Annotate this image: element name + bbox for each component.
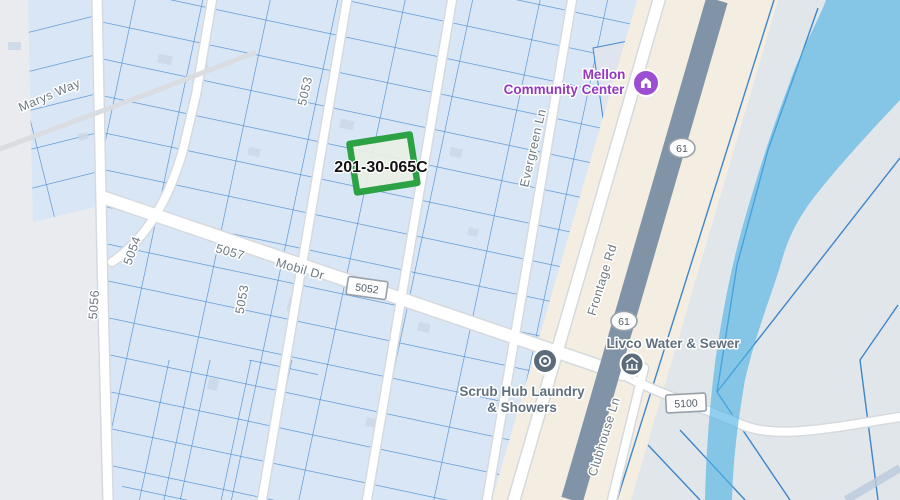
- shield-61-north-label: 61: [676, 143, 688, 155]
- shield-5100-label: 5100: [674, 397, 698, 410]
- shield-5100: 5100: [666, 393, 707, 413]
- poi-label-livco[interactable]: Livco Water & Sewer: [606, 336, 740, 351]
- poi-scrub-hub-line1: Scrub Hub Laundry: [459, 384, 585, 399]
- parcel-id-label[interactable]: 201-30-065C: [334, 159, 428, 176]
- poi-community-center-line2: Community Center: [504, 82, 626, 97]
- poi-livco-line1: Livco Water & Sewer: [606, 336, 740, 351]
- shield-61-south: 61: [611, 312, 637, 331]
- poi-scrub-hub-line2: & Showers: [487, 400, 557, 415]
- map-svg[interactable]: Marys Way 5053 5053 5054 5056 5057 Mobil…: [0, 0, 900, 500]
- shield-61-south-label: 61: [618, 316, 630, 328]
- shield-61-north: 61: [669, 139, 695, 158]
- map-canvas[interactable]: Marys Way 5053 5053 5054 5056 5057 Mobil…: [0, 0, 900, 500]
- poi-community-center-line1: Mellon: [583, 67, 626, 82]
- street-label-5056: 5056: [86, 290, 102, 320]
